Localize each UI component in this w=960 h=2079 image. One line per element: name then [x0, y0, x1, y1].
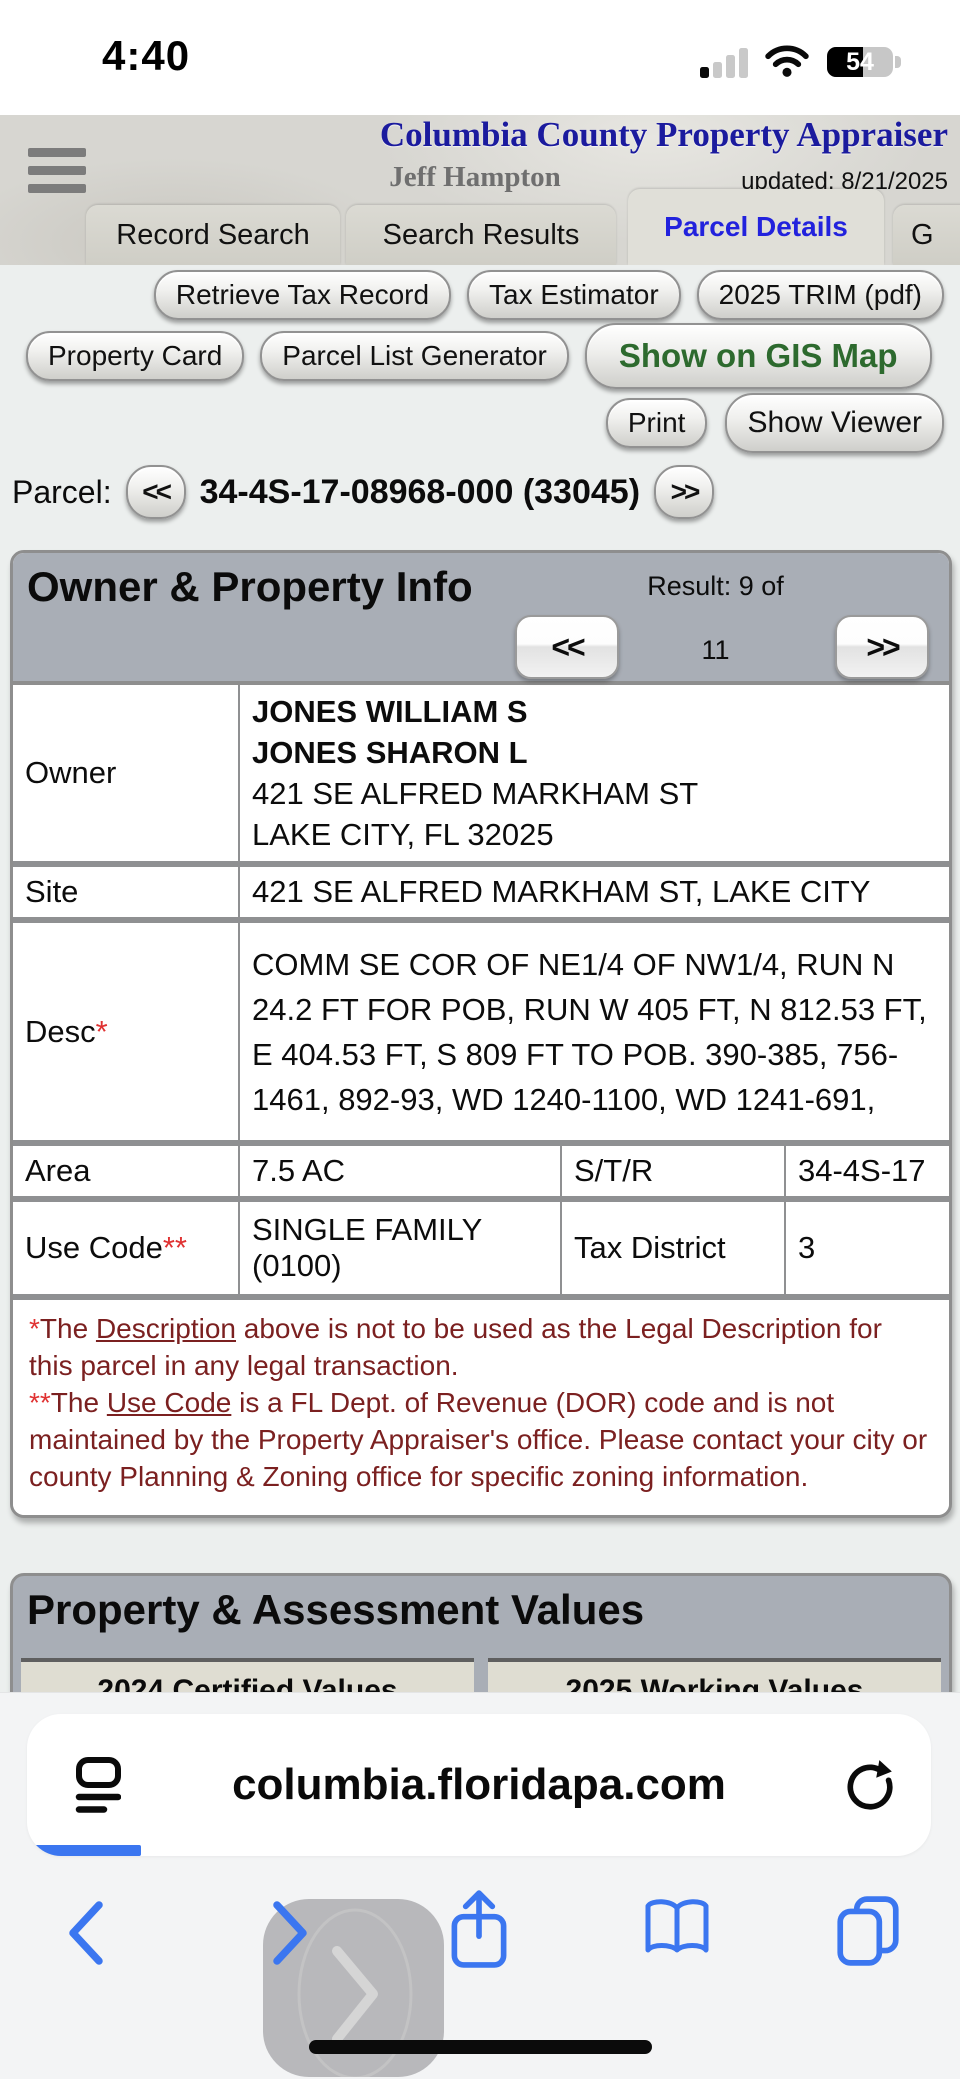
site-title: Columbia County Property Appraiser	[380, 115, 948, 155]
owner-panel-title: Owner & Property Info	[27, 557, 497, 616]
site-header: Columbia County Property Appraiser Jeff …	[0, 115, 960, 265]
battery-percent: 54	[827, 47, 893, 77]
tax-estimator-button[interactable]: Tax Estimator	[467, 270, 681, 320]
use-code-label: Use Code**	[13, 1199, 239, 1294]
owner-panel-header: Owner & Property Info Result: 9 of 11 <<…	[13, 553, 949, 685]
use-code-value: SINGLE FAMILY (0100)	[239, 1199, 561, 1294]
str-value: 34-4S-17	[785, 1143, 949, 1199]
use-code-link[interactable]: Use Code	[107, 1387, 232, 1418]
desc-asterisk: *	[96, 1014, 108, 1049]
area-label: Area	[13, 1143, 239, 1199]
forward-button[interactable]	[268, 1901, 312, 1965]
button-row-middle: Property Card Parcel List Generator Show…	[26, 323, 932, 389]
footnote1-asterisk: *	[29, 1313, 40, 1344]
owner-address-1: 421 SE ALFRED MARKHAM ST	[252, 773, 937, 814]
owner-name-1: JONES WILLIAM S	[252, 691, 937, 732]
tab-parcel-details[interactable]: Parcel Details	[628, 189, 884, 265]
table-row-desc: Desc* COMM SE COR OF NE1/4 OF NW1/4, RUN…	[13, 920, 949, 1143]
tax-district-label: Tax District	[561, 1199, 785, 1294]
reload-icon[interactable]	[843, 1758, 897, 1812]
appraiser-name: Jeff Hampton	[330, 161, 620, 194]
assessment-values-title: Property & Assessment Values	[27, 1586, 644, 1634]
owner-property-panel: Owner & Property Info Result: 9 of 11 <<…	[10, 550, 952, 1518]
parcel-line: Parcel: << 34-4S-17-08968-000 (33045) >>	[12, 465, 714, 519]
share-icon[interactable]	[450, 1889, 508, 1969]
result-next-button[interactable]: >>	[835, 615, 929, 679]
iphone-safari-screen: 4:40 54 Columbia County Property Apprais…	[0, 0, 960, 2079]
table-row-area: Area 7.5 AC S/T/R 34-4S-17	[13, 1143, 949, 1199]
battery-nub	[895, 56, 901, 68]
home-indicator[interactable]	[309, 2040, 652, 2054]
property-card-button[interactable]: Property Card	[26, 331, 244, 381]
table-row-use-code: Use Code** SINGLE FAMILY (0100) Tax Dist…	[13, 1199, 949, 1294]
result-total: 11	[608, 635, 823, 666]
retrieve-tax-record-button[interactable]: Retrieve Tax Record	[154, 270, 451, 320]
site-value: 421 SE ALFRED MARKHAM ST, LAKE CITY	[239, 864, 949, 920]
parcel-prev-button[interactable]: <<	[126, 465, 186, 519]
area-value: 7.5 AC	[239, 1143, 561, 1199]
result-prev-button[interactable]: <<	[515, 615, 619, 679]
owner-label: Owner	[13, 685, 239, 864]
print-button[interactable]: Print	[606, 398, 708, 448]
back-button[interactable]	[64, 1901, 108, 1965]
tabs-icon[interactable]	[836, 1895, 900, 1967]
url-text: columbia.floridapa.com	[27, 1714, 931, 1856]
trim-pdf-button[interactable]: 2025 TRIM (pdf)	[697, 270, 944, 320]
tab-record-search[interactable]: Record Search	[86, 205, 340, 265]
hamburger-menu-icon[interactable]	[28, 148, 86, 202]
owner-address-2: LAKE CITY, FL 32025	[252, 814, 937, 855]
tax-district-value: 3	[785, 1199, 949, 1294]
parcel-number: 34-4S-17-08968-000 (33045)	[200, 473, 640, 512]
bookmarks-icon[interactable]	[642, 1897, 712, 1957]
show-on-gis-map-button[interactable]: Show on GIS Map	[585, 323, 932, 389]
desc-label: Desc*	[13, 920, 239, 1143]
site-label: Site	[13, 864, 239, 920]
status-time: 4:40	[102, 32, 190, 80]
tab-search-results[interactable]: Search Results	[346, 205, 616, 265]
table-row-site: Site 421 SE ALFRED MARKHAM ST, LAKE CITY	[13, 864, 949, 920]
owner-value: JONES WILLIAM S JONES SHARON L 421 SE AL…	[239, 685, 949, 864]
address-bar[interactable]: columbia.floridapa.com	[27, 1714, 931, 1856]
owner-property-table: Owner JONES WILLIAM S JONES SHARON L 421…	[13, 685, 949, 1294]
desc-value: COMM SE COR OF NE1/4 OF NW1/4, RUN N 24.…	[239, 920, 949, 1143]
tab-gis-map-partial[interactable]: G	[893, 205, 960, 265]
use-code-asterisks: **	[163, 1230, 187, 1265]
parcel-list-generator-button[interactable]: Parcel List Generator	[260, 331, 569, 381]
safari-bottom-chrome: columbia.floridapa.com	[0, 1692, 960, 2079]
owner-name-2: JONES SHARON L	[252, 732, 937, 773]
cellular-signal-icon	[700, 46, 748, 78]
parcel-next-button[interactable]: >>	[654, 465, 714, 519]
legal-footnotes: *The Description above is not to be used…	[13, 1294, 949, 1515]
footnote2-asterisks: **	[29, 1387, 51, 1418]
status-bar: 4:40 54	[0, 0, 960, 115]
str-label: S/T/R	[561, 1143, 785, 1199]
battery-icon: 54	[827, 47, 893, 77]
button-row-bottom: Print Show Viewer	[606, 393, 944, 453]
result-count-label: Result: 9 of	[608, 571, 823, 602]
page-load-progress-bar	[35, 1845, 141, 1856]
table-row-owner: Owner JONES WILLIAM S JONES SHARON L 421…	[13, 685, 949, 864]
description-link[interactable]: Description	[96, 1313, 236, 1344]
button-row-top: Retrieve Tax Record Tax Estimator 2025 T…	[154, 270, 944, 320]
wifi-icon	[764, 44, 810, 78]
show-viewer-button[interactable]: Show Viewer	[725, 393, 944, 453]
parcel-label: Parcel:	[12, 474, 112, 511]
